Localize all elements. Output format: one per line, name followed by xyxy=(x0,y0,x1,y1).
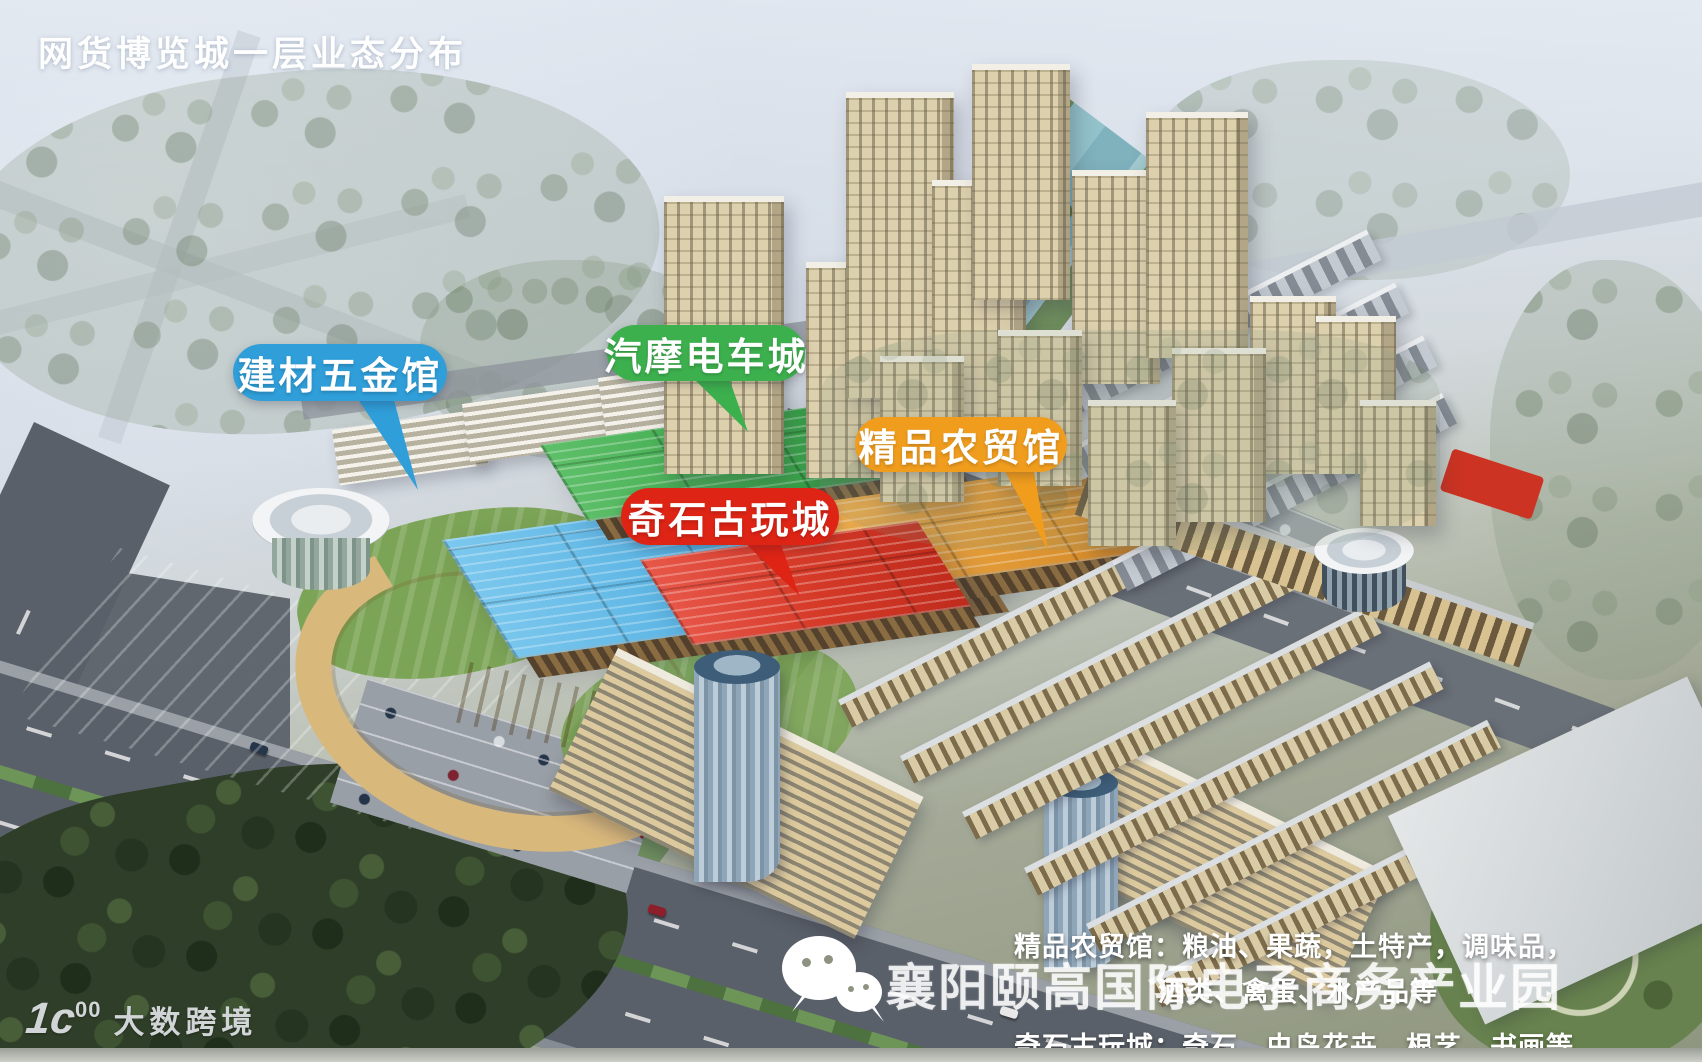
brand-logo-mark: 1c xyxy=(23,994,77,1044)
brand-logo: 1c 00 大数跨境 xyxy=(26,994,257,1044)
glass-tower xyxy=(694,666,780,882)
brand-logo-mark-sup: 00 xyxy=(75,997,101,1023)
label-auto-text: 汽摩电车城 xyxy=(604,326,809,381)
residential-tower xyxy=(972,64,1070,300)
label-antique-text: 奇石古玩城 xyxy=(627,489,832,544)
label-auto-city: 汽摩电车城 xyxy=(607,325,805,381)
glass-tower-roof xyxy=(694,650,780,684)
label-agri-text: 精品农贸馆 xyxy=(858,417,1063,472)
mall-rotunda xyxy=(272,538,370,590)
label-antique-city: 奇石古玩城 xyxy=(621,488,839,545)
aerial-site-rendering: 建材五金馆 汽摩电车城 精品农贸馆 奇石古玩城 网货博览城一层业态分布 精品农贸… xyxy=(0,0,1702,1062)
label-hardware-hall: 建材五金馆 xyxy=(233,344,447,401)
label-agri-hall: 精品农贸馆 xyxy=(855,417,1067,472)
wechat-icon xyxy=(780,928,884,1024)
bottom-strip xyxy=(0,1048,1702,1062)
residential-tower xyxy=(1146,112,1248,358)
page-title: 网货博览城一层业态分布 xyxy=(38,26,467,77)
label-hardware-text: 建材五金馆 xyxy=(237,345,442,400)
watermark-text: 襄阳颐高国际电子商务产业园 xyxy=(886,948,1562,1020)
brand-logo-name: 大数跨境 xyxy=(113,997,257,1042)
